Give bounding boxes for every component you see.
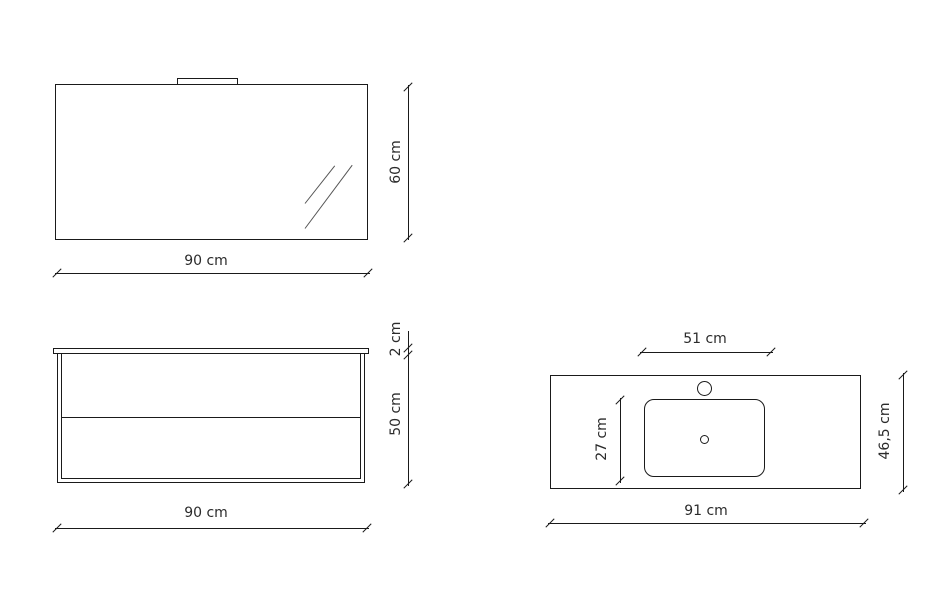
drain-hole [700, 435, 709, 444]
dimension-label-cabinet-top-thickness: 2 cm [389, 322, 403, 357]
mirror-outline [55, 84, 368, 240]
dimension-label-cabinet-width: 90 cm [184, 506, 228, 520]
dimension-line-counter-depth [903, 373, 904, 492]
dimension-label-counter-width: 91 cm [684, 504, 728, 518]
faucet-hole [697, 381, 712, 396]
dimension-line-mirror-height [408, 85, 409, 240]
technical-drawing-canvas: 60 cm 90 cm 2 cm 50 cm 90 cm 51 [0, 0, 942, 616]
dimension-line-basin-width [640, 352, 773, 353]
mirror-light-bar [177, 78, 238, 85]
dimension-label-basin-width: 51 cm [683, 332, 727, 346]
dimension-line-basin-depth [620, 398, 621, 483]
dimension-label-mirror-width: 90 cm [184, 254, 228, 268]
dimension-line-mirror-width [55, 273, 370, 274]
dimension-line-cabinet-width [55, 528, 369, 529]
dimension-label-mirror-height: 60 cm [389, 140, 403, 184]
dimension-label-basin-depth: 27 cm [595, 417, 609, 461]
dimension-label-cabinet-height: 50 cm [389, 392, 403, 436]
cabinet-drawer-divider [62, 417, 360, 418]
dimension-line-counter-width [548, 523, 866, 524]
dimension-label-counter-depth: 46,5 cm [878, 403, 892, 460]
